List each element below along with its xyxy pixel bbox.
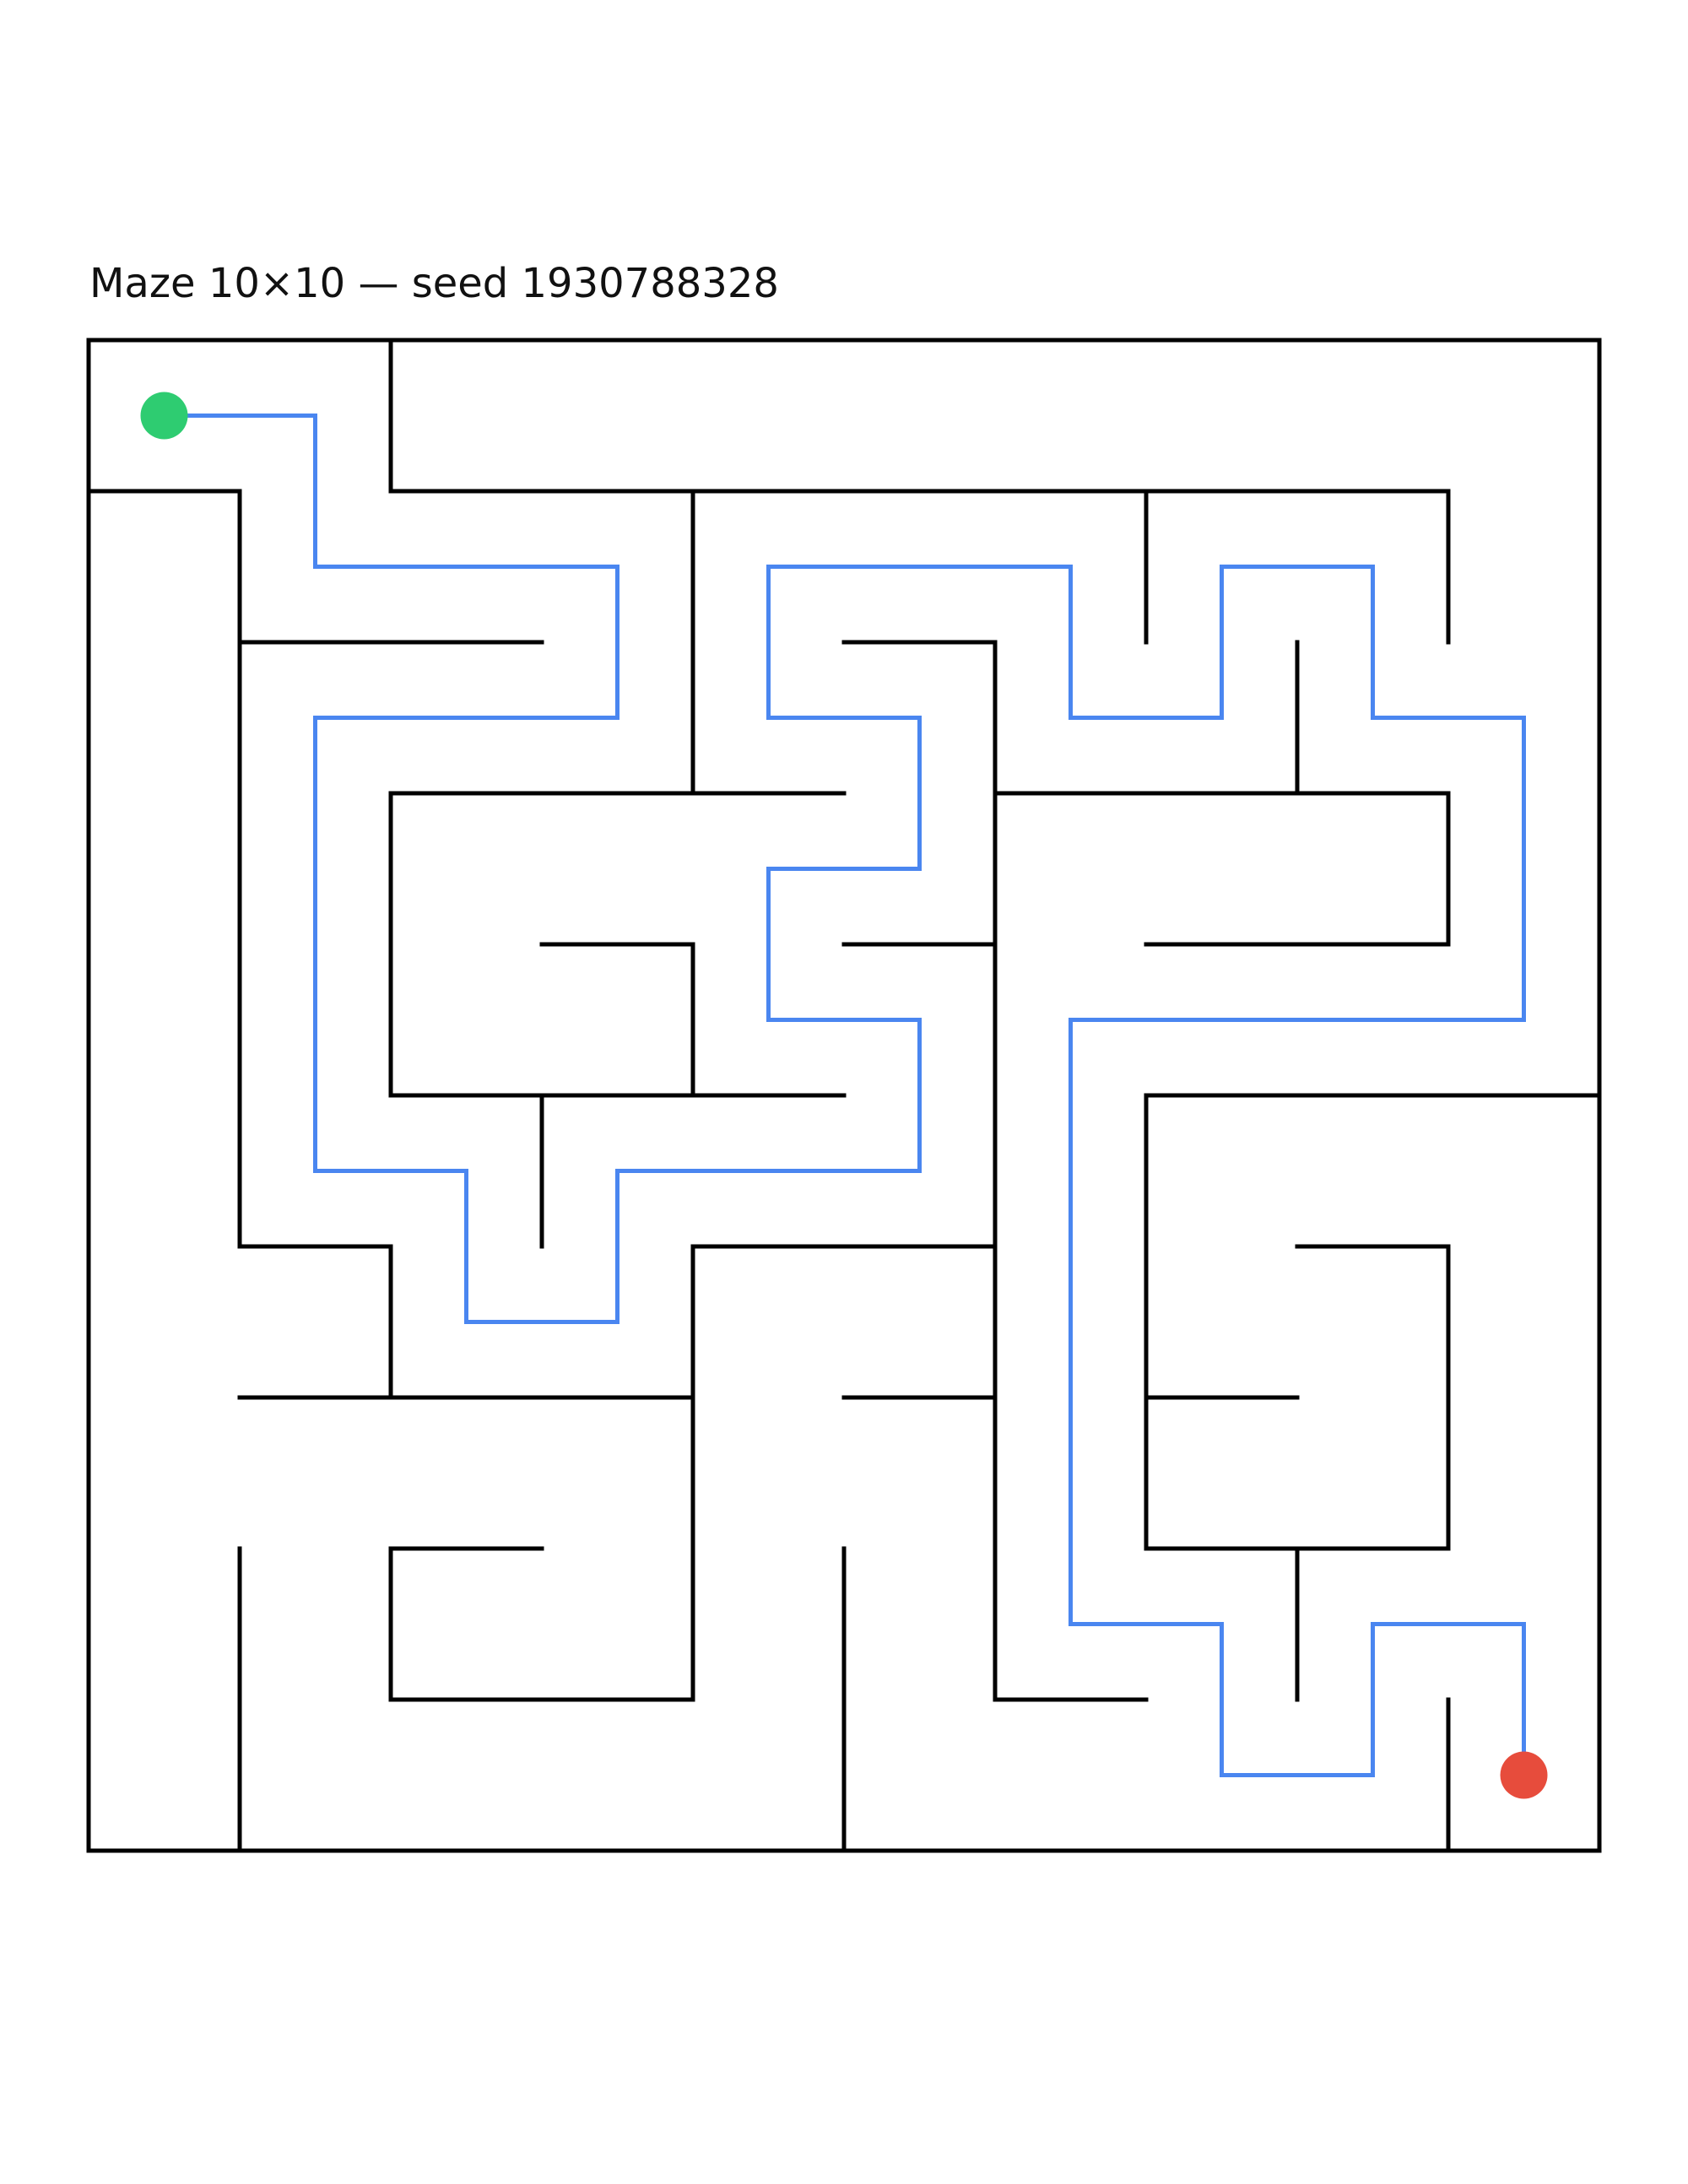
maze-page: Maze 10×10 — seed 1930788328 xyxy=(0,0,1688,2184)
maze-canvas xyxy=(0,0,1688,2184)
start-marker xyxy=(141,392,188,440)
end-marker xyxy=(1501,1752,1548,1799)
